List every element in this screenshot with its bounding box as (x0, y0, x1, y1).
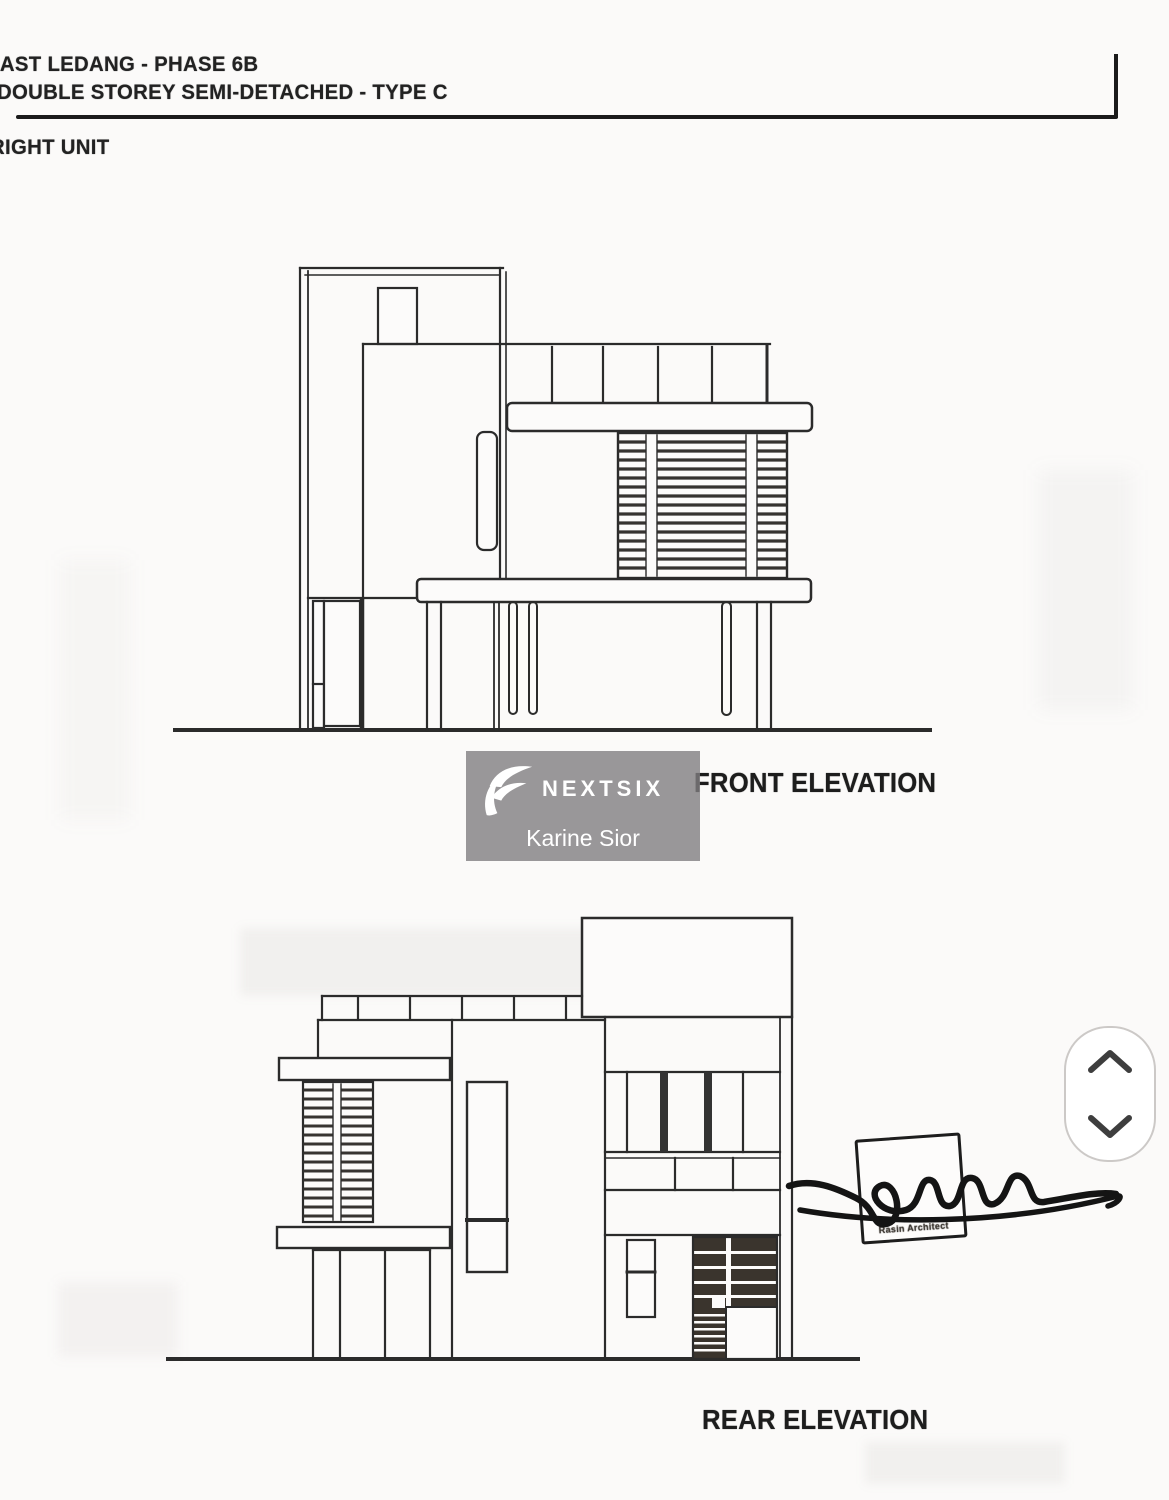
rear-tower-top (582, 918, 792, 1017)
rear-balcony-slab (279, 1058, 450, 1080)
rear-small-window (627, 1240, 655, 1317)
front-louvre-window (618, 433, 787, 578)
scroll-down-button[interactable] (1066, 1094, 1154, 1160)
elevation-drawings (0, 0, 1169, 1500)
header-corner-tick (1114, 54, 1118, 118)
chevron-up-icon (1087, 1048, 1133, 1074)
scanned-elevation-sheet: EAST LEDANG - PHASE 6B DOUBLE STOREY SEM… (0, 0, 1169, 1500)
front-floor-slab (417, 579, 811, 602)
architect-stamp: Rasin Architect (854, 1132, 967, 1244)
rear-centre-window (467, 1082, 507, 1272)
front-elevation-label: FRONT ELEVATION (694, 767, 936, 799)
watermark-agent-name: Karine Sior (466, 825, 700, 852)
rear-lower-slab (277, 1227, 450, 1248)
project-title-line2: DOUBLE STOREY SEMI-DETACHED - TYPE C (0, 81, 448, 105)
stamp-caption: Rasin Architect (864, 1219, 964, 1236)
scan-artifact (58, 1282, 178, 1357)
front-slim-window (477, 432, 497, 550)
scan-artifact (1038, 470, 1133, 710)
scroll-up-button[interactable] (1066, 1028, 1154, 1094)
front-ground-floor (313, 601, 771, 730)
rear-elevation-label: REAR ELEVATION (702, 1404, 928, 1436)
rear-grille-gate (693, 1237, 777, 1359)
scroll-widget (1064, 1026, 1156, 1162)
header-rule (16, 115, 1118, 119)
front-upper-slab (507, 403, 812, 431)
project-title-line1: EAST LEDANG - PHASE 6B (0, 53, 258, 77)
rear-louvre-window (303, 1082, 373, 1222)
front-elevation-drawing (175, 268, 930, 730)
scan-artifact (865, 1442, 1065, 1484)
rear-upper-windows (627, 1072, 743, 1152)
scan-artifact (240, 928, 590, 996)
agency-watermark: NEXTSIX Karine Sior (466, 751, 700, 861)
chevron-down-icon (1087, 1114, 1133, 1140)
nextsix-wing-icon (479, 760, 537, 818)
front-roof-box (378, 288, 417, 344)
rear-elevation-drawing (168, 918, 858, 1359)
unit-label: RIGHT UNIT (0, 136, 109, 160)
scan-artifact (60, 560, 130, 820)
rear-door (313, 1250, 430, 1357)
watermark-brand: NEXTSIX (542, 776, 664, 802)
